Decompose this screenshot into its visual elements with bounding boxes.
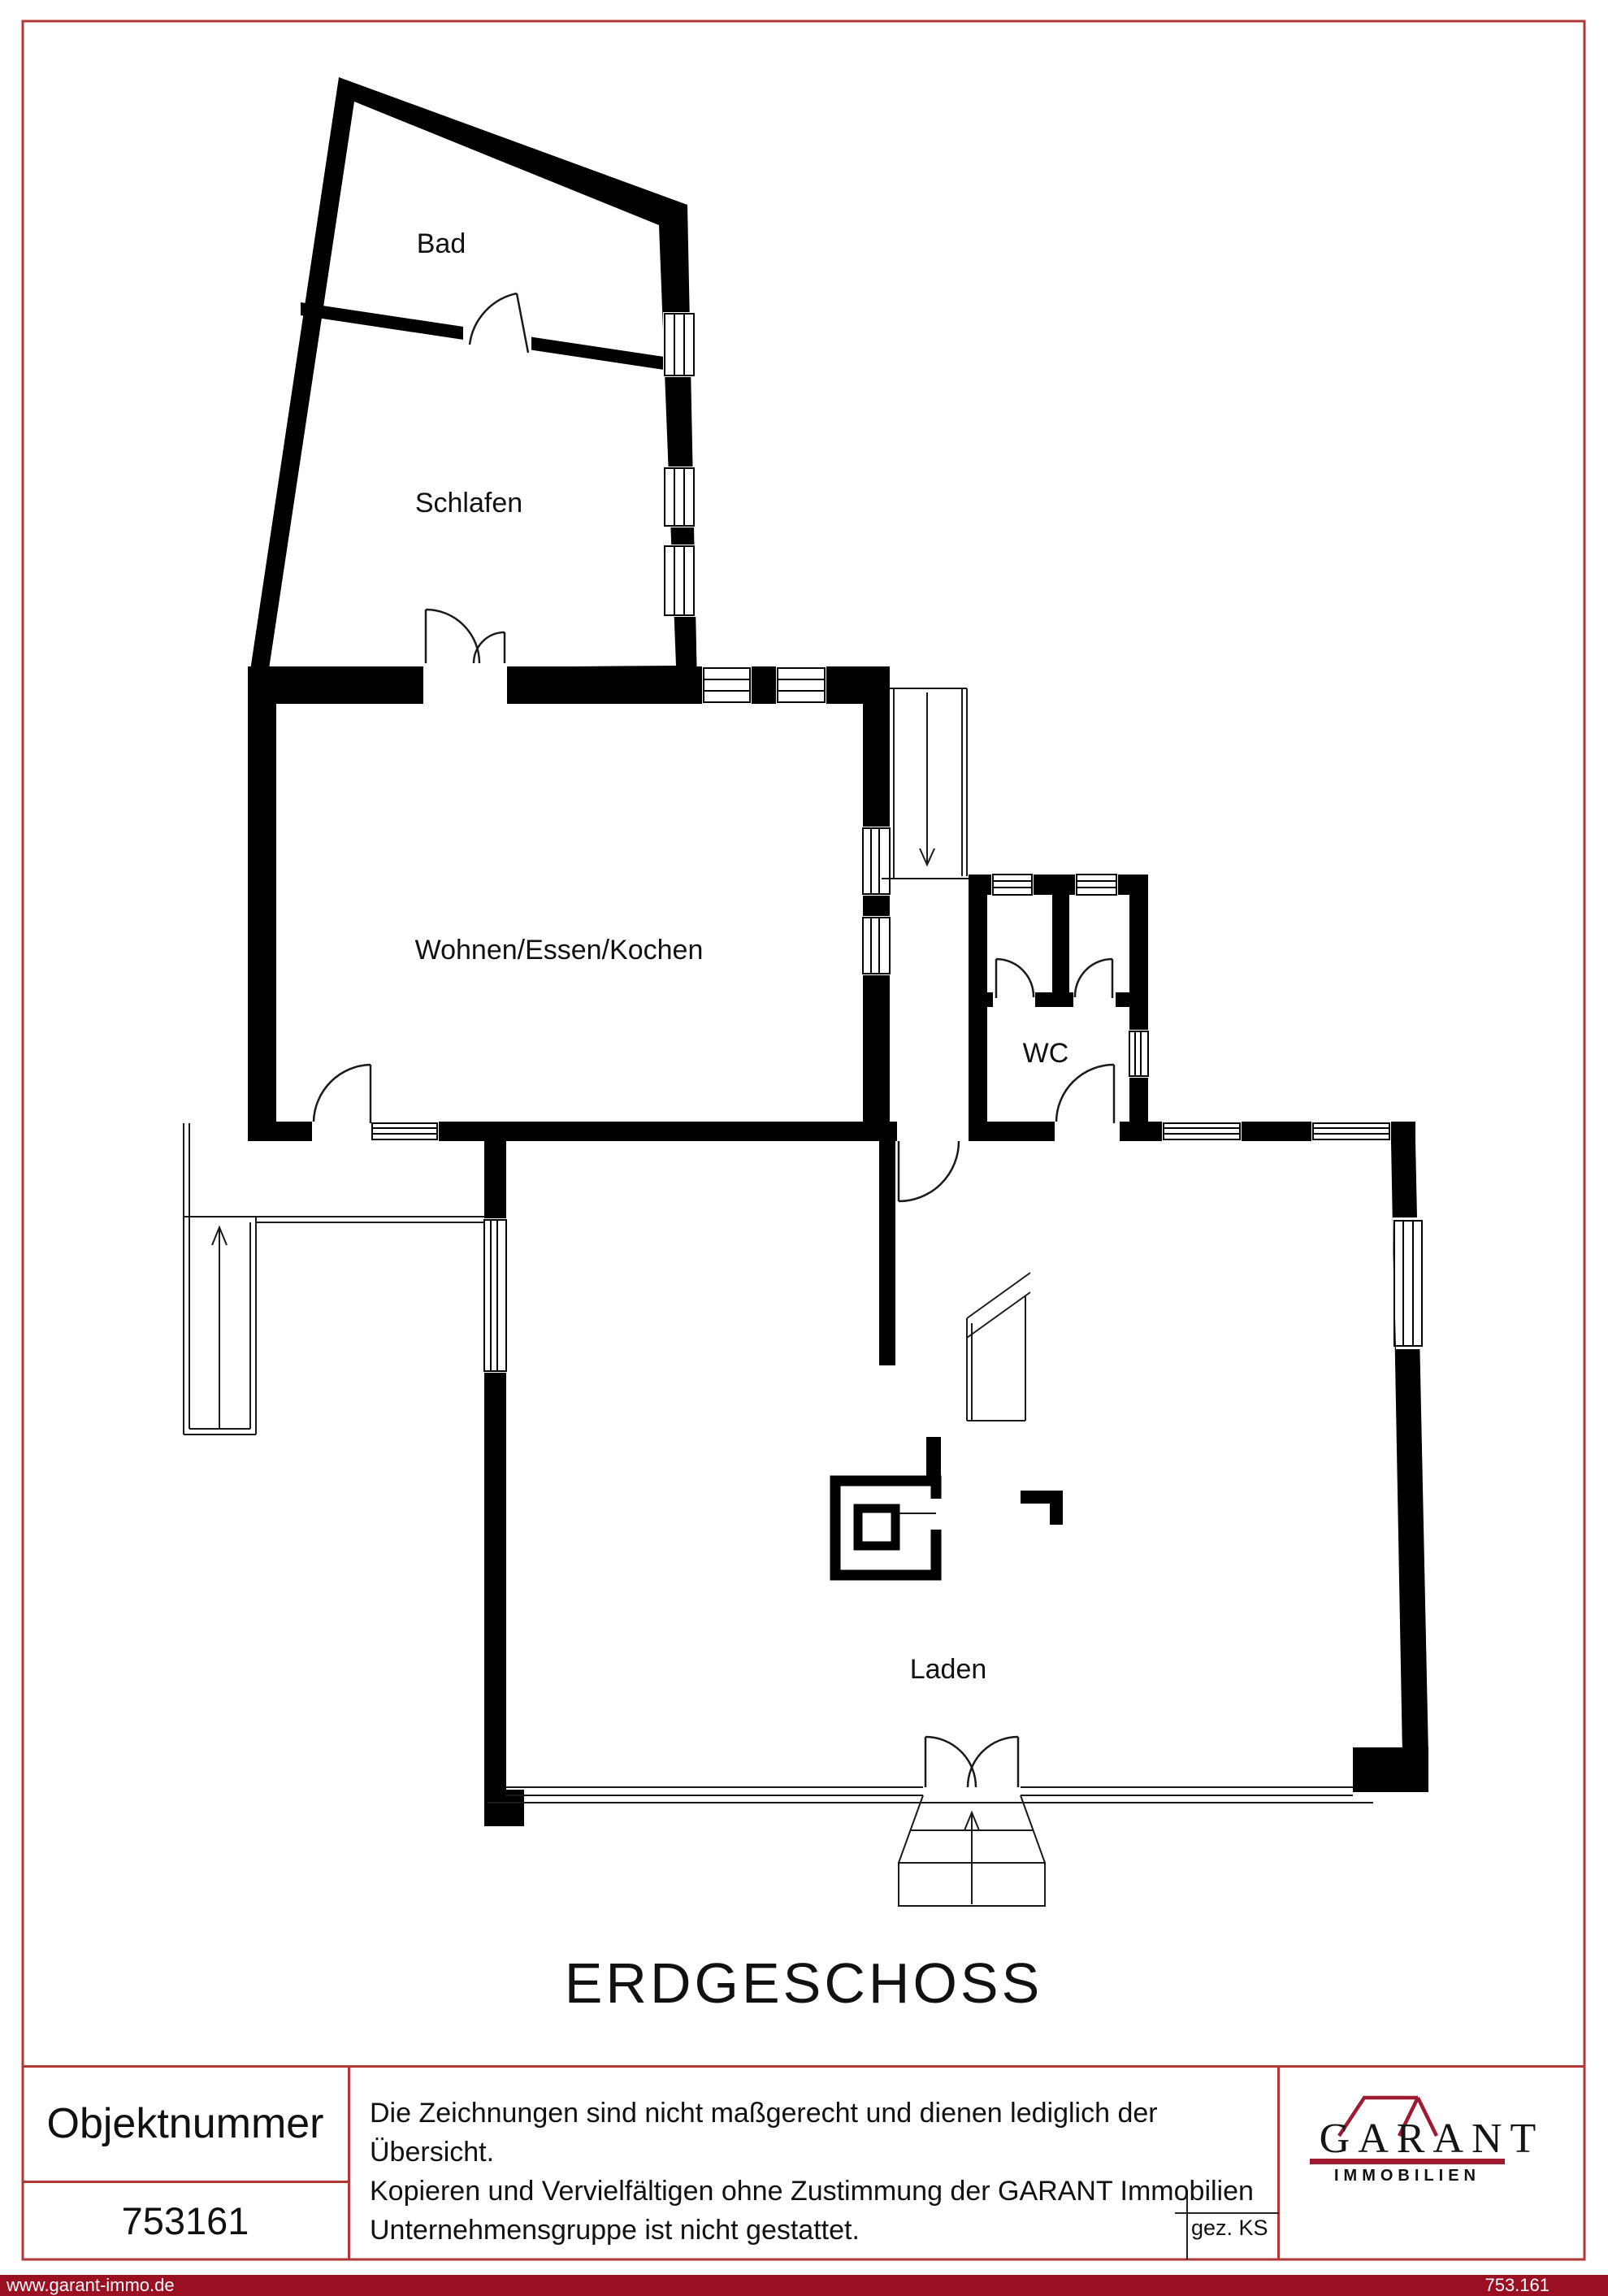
wall-upper-block	[248, 77, 697, 687]
object-number-value: 753161	[23, 2181, 348, 2260]
room-label-wohnen: Wohnen/Essen/Kochen	[415, 935, 704, 966]
disclaimer-line: Die Zeichnungen sind nicht maßgerecht un…	[370, 2094, 1263, 2172]
signature-vline	[1186, 2194, 1188, 2259]
logo-subtitle: IMMOBILIEN	[1316, 2167, 1498, 2185]
wall-stub-v	[1050, 1491, 1063, 1525]
wall-wc-right	[1129, 875, 1148, 1141]
wall-wohnen-right	[863, 688, 890, 1141]
object-number-label: Objektnummer	[23, 2067, 348, 2181]
entrance-porch	[184, 1123, 484, 1434]
wall-wc-rooms-divider	[1052, 895, 1069, 1007]
wall-wc-left	[969, 875, 987, 1141]
wall-openings	[312, 312, 1424, 1373]
floor-plan-page: Bad Schlafen Wohnen/Essen/Kochen WC Lade…	[0, 0, 1608, 2296]
room-label-laden: Laden	[910, 1654, 987, 1685]
footer-divider-1	[348, 2065, 350, 2260]
door-wc-entry	[1056, 1065, 1114, 1123]
door-wohnen-entry	[314, 1065, 371, 1123]
garant-logo: GARANT IMMOBILIEN	[1310, 2089, 1554, 2186]
disclaimer-line: Unternehmensgruppe ist nicht gestattet.	[370, 2211, 1263, 2250]
stairs-corridor	[882, 688, 969, 879]
disclaimer: Die Zeichnungen sind nicht maßgerecht un…	[370, 2094, 1263, 2250]
shopfront	[488, 1787, 1373, 1906]
wall-laden-right-foot	[1353, 1747, 1428, 1792]
fixtures	[835, 1273, 1030, 1575]
wall-laden-partition	[879, 1141, 895, 1365]
page-title: ERDGESCHOSS	[23, 1951, 1584, 2016]
logo-red-bar	[1310, 2159, 1505, 2164]
display-fixture	[967, 1273, 1030, 1421]
room-label-wc: WC	[1023, 1038, 1069, 1069]
logo-name: GARANT	[1316, 2115, 1547, 2163]
door-corridor-laden	[899, 1141, 959, 1201]
room-label-schlafen: Schlafen	[415, 488, 522, 519]
reference-number: 753.161	[1484, 2275, 1549, 2296]
wall-wohnen-left	[248, 666, 276, 1141]
disclaimer-line: Kopieren und Vervielfältigen ohne Zustim…	[370, 2172, 1263, 2211]
signature-hline	[1175, 2212, 1279, 2214]
door-schlafen-left-leaf	[426, 610, 479, 663]
bottom-bar: www.garant-immo.de 753.161	[0, 2275, 1608, 2296]
signature-text: gez. KS	[1191, 2216, 1281, 2248]
windows	[372, 314, 1422, 1371]
chimney-flue	[858, 1508, 895, 1546]
website-url: www.garant-immo.de	[7, 2275, 175, 2296]
room-label-bad: Bad	[417, 228, 466, 259]
